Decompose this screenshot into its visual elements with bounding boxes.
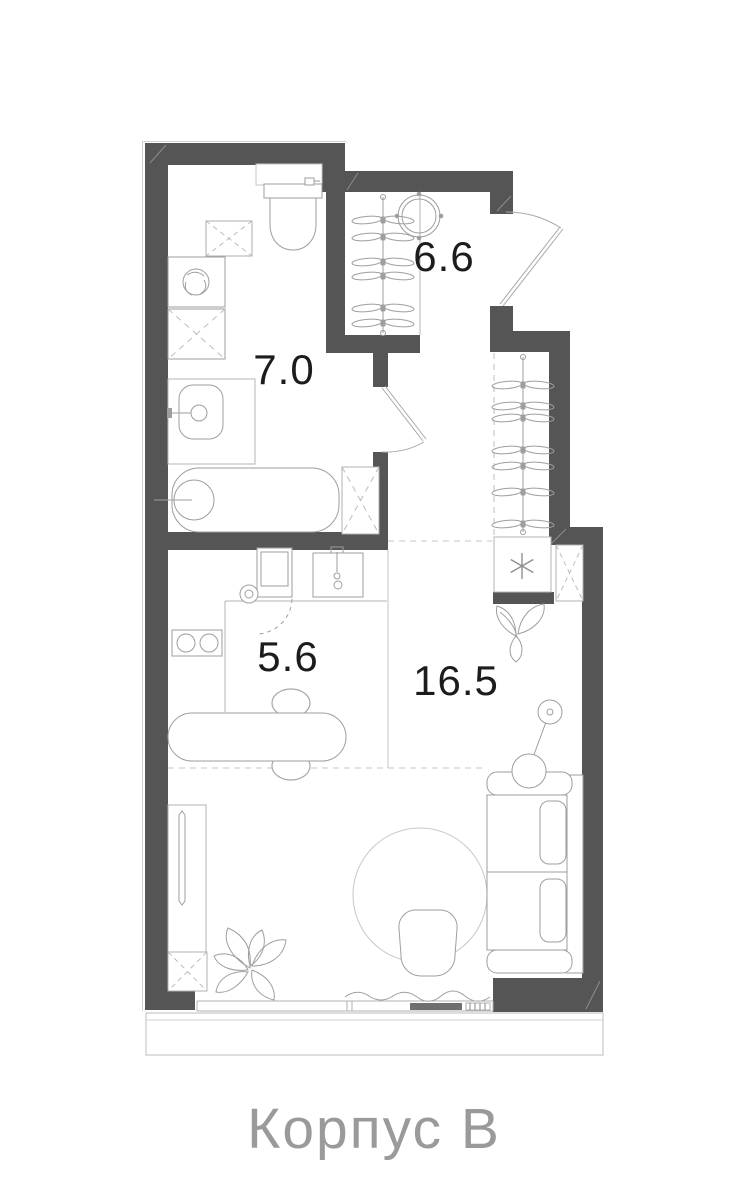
shower-tray-icon — [168, 309, 225, 359]
room-area-label-living-room: 16.5 — [413, 657, 499, 705]
washing-machine-icon — [168, 257, 225, 307]
conditioner-star-box — [494, 537, 551, 592]
bathtub-icon — [154, 468, 339, 532]
cooktop-icon — [172, 630, 222, 656]
fridge-icon — [256, 548, 292, 634]
toilet-icon — [264, 178, 322, 250]
room-area-label-bathroom: 7.0 — [253, 346, 314, 394]
dining-table-icon — [168, 713, 346, 761]
kitchen-sink-icon — [313, 547, 363, 597]
bathroom-door — [382, 386, 426, 452]
building-caption: Корпус В — [0, 1096, 748, 1162]
right-wardrobe — [492, 353, 555, 536]
mirror-cabinet-icon — [168, 805, 206, 953]
corner-shaft-icon — [168, 952, 207, 991]
ventilation-shaft-icon — [206, 221, 252, 256]
kettle-icon — [240, 585, 258, 603]
panoramic-window — [197, 1001, 493, 1011]
hallway-wardrobe — [352, 192, 420, 336]
room-area-label-kitchen: 5.6 — [257, 633, 318, 681]
plant-icon-bottom — [214, 928, 286, 1000]
room-area-label-hallway: 6.6 — [413, 233, 474, 281]
sofa-icon — [487, 772, 583, 973]
floor-plan-page: 6.6 7.0 5.6 16.5 Корпус В — [0, 0, 748, 1200]
bath-shaft-icon — [342, 467, 379, 534]
curtain-wave-line — [345, 991, 490, 1001]
plant-icon-top — [496, 604, 544, 662]
entrance-door — [500, 212, 563, 306]
floor-plan-svg — [0, 0, 748, 1200]
pouf-icon — [399, 910, 457, 976]
balcony-contour — [146, 1013, 603, 1055]
right-shaft-icon — [556, 545, 583, 601]
washbasin-icon — [167, 379, 255, 464]
